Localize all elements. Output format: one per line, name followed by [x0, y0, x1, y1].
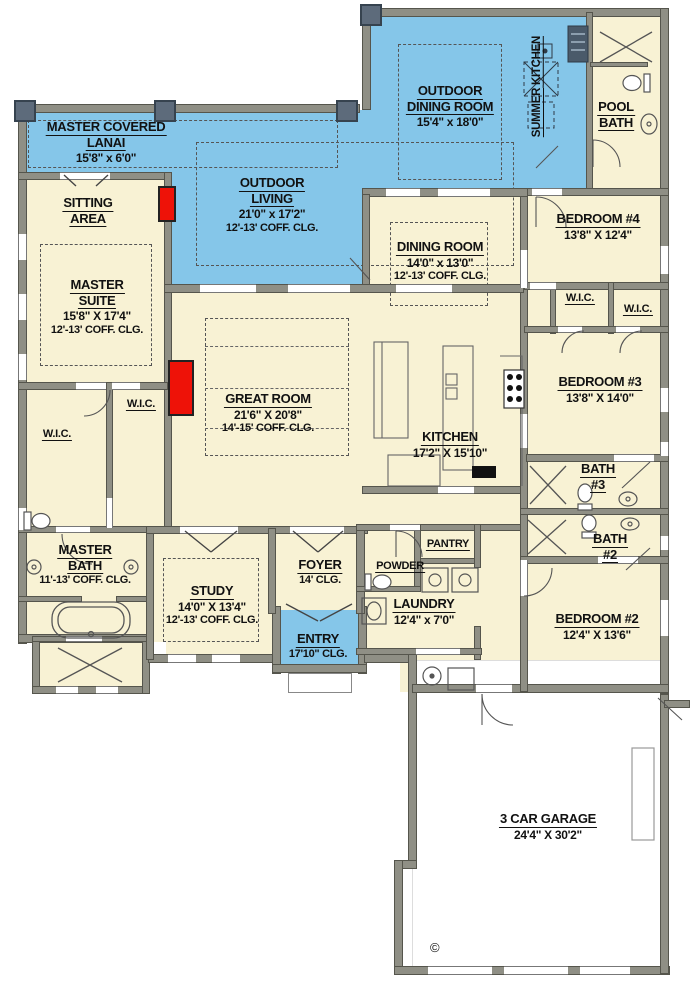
- bathtub-icon: [52, 602, 130, 638]
- label-wic-master-left: W.I.C.: [42, 428, 72, 441]
- label-bath-3: BATH #3: [580, 462, 616, 493]
- label-entry: ENTRY 17'10" CLG.: [289, 632, 347, 660]
- label-bedroom-3: BEDROOM #3 13'8" X 14'0": [558, 375, 643, 405]
- label-outdoor-living: OUTDOOR LIVING 21'0" x 17'2" 12'-13' COF…: [226, 176, 318, 234]
- label-outdoor-dining: OUTDOOR DINING ROOM 15'4" x 18'0": [406, 84, 494, 130]
- garage-storage-outline: [632, 748, 654, 840]
- label-kitchen: KITCHEN 17'2" X 15'10": [413, 430, 487, 460]
- label-wic-bedroom4: W.I.C.: [565, 292, 595, 305]
- label-wic-master-inner: W.I.C.: [126, 398, 156, 411]
- label-master-covered-lanai: MASTER COVERED LANAI 15'8" x 6'0": [46, 120, 167, 166]
- label-garage: 3 CAR GARAGE 24'4" X 30'2": [499, 812, 597, 842]
- wall-oven-icon: [472, 466, 496, 478]
- washer-dryer-icon: [422, 568, 478, 592]
- stove-icon: [504, 370, 524, 408]
- floor-plan: MASTER COVERED LANAI 15'8" x 6'0" OUTDOO…: [0, 0, 690, 1000]
- label-bath-2: BATH #2: [592, 532, 628, 563]
- label-master-suite: MASTER SUITE 15'8" X 17'4" 12'-13' COFF.…: [51, 278, 143, 336]
- label-sitting-area: SITTING AREA: [62, 196, 113, 227]
- label-study: STUDY 14'0" X 13'4" 12'-13' COFF. CLG.: [166, 584, 258, 626]
- label-pool-bath: POOL BATH: [597, 100, 635, 131]
- copyright-mark: ©: [430, 940, 440, 955]
- label-bedroom-2: BEDROOM #2 12'4" X 13'6": [555, 612, 640, 642]
- label-summer-kitchen: SUMMER KITCHEN: [531, 36, 544, 137]
- water-heater-icon: [423, 667, 474, 690]
- label-wic-bedroom3: W.I.C.: [623, 303, 653, 316]
- label-great-room: GREAT ROOM 21'6" X 20'8" 14'-15' COFF. C…: [222, 392, 314, 434]
- label-powder: POWDER: [375, 560, 425, 573]
- label-foyer: FOYER 14' CLG.: [297, 558, 342, 586]
- label-master-bath: MASTER BATH 11'-13' COFF. CLG.: [39, 543, 131, 586]
- label-pantry: PANTRY: [426, 538, 470, 551]
- kitchen-island-outline: [374, 342, 522, 486]
- label-bedroom-4: BEDROOM #4 13'8" X 12'4": [556, 212, 641, 242]
- label-laundry: LAUNDRY 12'4" x 7'0": [393, 597, 456, 627]
- label-dining-room: DINING ROOM 14'0" x 13'0" 12'-13' COFF. …: [394, 240, 486, 282]
